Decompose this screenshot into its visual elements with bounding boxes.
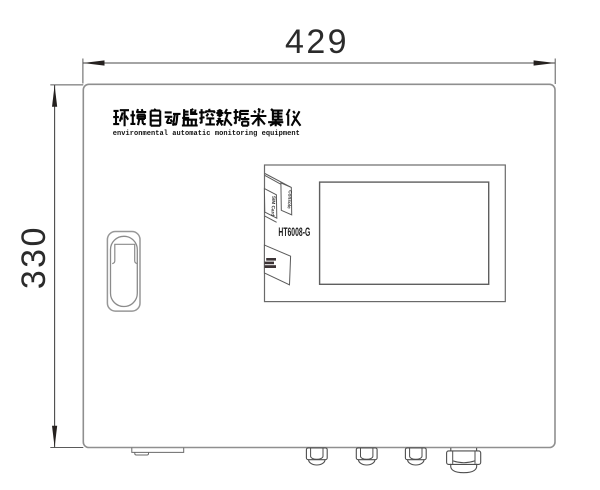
svg-text:environmental automatic monito: environmental automatic monitoring equip… [113,130,300,138]
svg-text:429: 429 [285,23,349,61]
svg-text:330: 330 [15,225,53,289]
svg-text:HT6008-G: HT6008-G [278,226,310,240]
